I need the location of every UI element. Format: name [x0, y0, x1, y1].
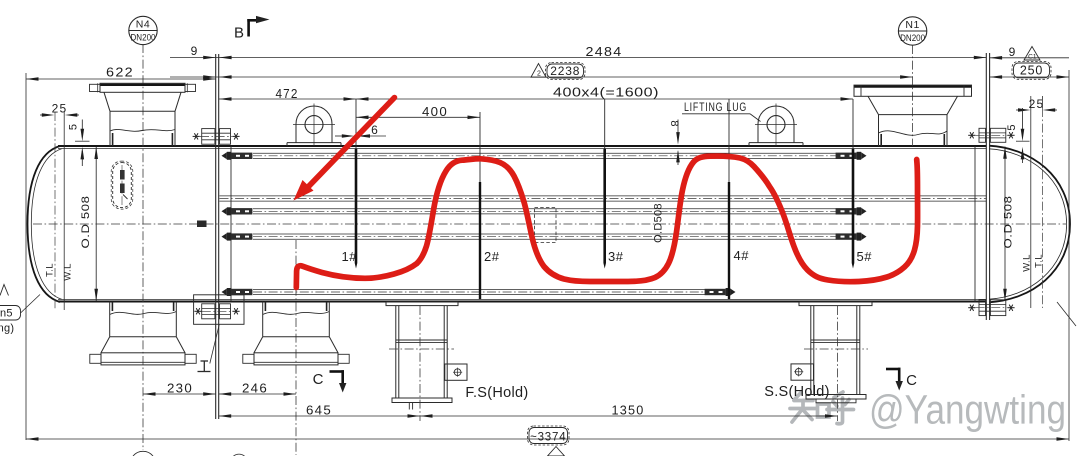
svg-text:1350: 1350 [612, 403, 645, 417]
svg-text:8: 8 [668, 120, 680, 127]
svg-text:W.L: W.L [1022, 254, 1033, 272]
svg-text:230: 230 [167, 381, 193, 395]
svg-text:T.L: T.L [45, 263, 56, 277]
svg-text:9: 9 [1009, 45, 1017, 59]
svg-text:S.S(Hold): S.S(Hold) [764, 384, 830, 400]
svg-text:25: 25 [52, 102, 68, 116]
svg-text:F.S(Hold): F.S(Hold) [465, 385, 528, 401]
svg-text:O.D508: O.D508 [653, 203, 665, 243]
svg-text:3#: 3# [608, 249, 624, 264]
svg-text:5: 5 [1006, 123, 1018, 130]
svg-text:2#: 2# [484, 249, 500, 264]
svg-text:O.D 508: O.D 508 [80, 196, 92, 249]
svg-text:~3374: ~3374 [530, 431, 566, 443]
svg-text:C: C [313, 371, 324, 388]
svg-text:N1: N1 [905, 19, 919, 31]
svg-text:4#: 4# [734, 248, 750, 263]
svg-text:5: 5 [68, 123, 80, 130]
svg-text:W.L: W.L [63, 263, 74, 281]
svg-text:@Yangwting: @Yangwting [869, 387, 1066, 433]
svg-text:400x4(=1600): 400x4(=1600) [553, 86, 659, 100]
svg-text:O.D 508: O.D 508 [1003, 196, 1015, 249]
svg-text:246: 246 [242, 381, 268, 395]
svg-text:6: 6 [371, 123, 379, 137]
svg-text:5#: 5# [857, 249, 873, 264]
svg-text:622: 622 [106, 65, 134, 80]
svg-text:LIFTING LUG: LIFTING LUG [684, 102, 747, 114]
svg-text:N4: N4 [136, 19, 150, 31]
svg-text:2484: 2484 [586, 44, 623, 59]
svg-text:25: 25 [1029, 97, 1045, 111]
svg-text:ng): ng) [0, 323, 14, 335]
svg-text:645: 645 [306, 403, 332, 417]
svg-text:C1: C1 [1028, 54, 1037, 61]
svg-text:9: 9 [191, 44, 199, 58]
svg-text:2: 2 [537, 71, 541, 78]
svg-text:472: 472 [276, 87, 299, 101]
svg-text:DN200: DN200 [900, 33, 925, 44]
svg-text:in5: in5 [0, 308, 13, 320]
svg-text:2238: 2238 [550, 64, 580, 78]
svg-text:C: C [906, 372, 917, 389]
svg-text:B: B [234, 25, 244, 42]
svg-text:T.L: T.L [1034, 254, 1045, 268]
svg-text:DN200: DN200 [131, 33, 156, 44]
svg-text:1#: 1# [342, 249, 358, 264]
svg-text:400: 400 [422, 105, 448, 119]
svg-text:250: 250 [1020, 64, 1043, 78]
